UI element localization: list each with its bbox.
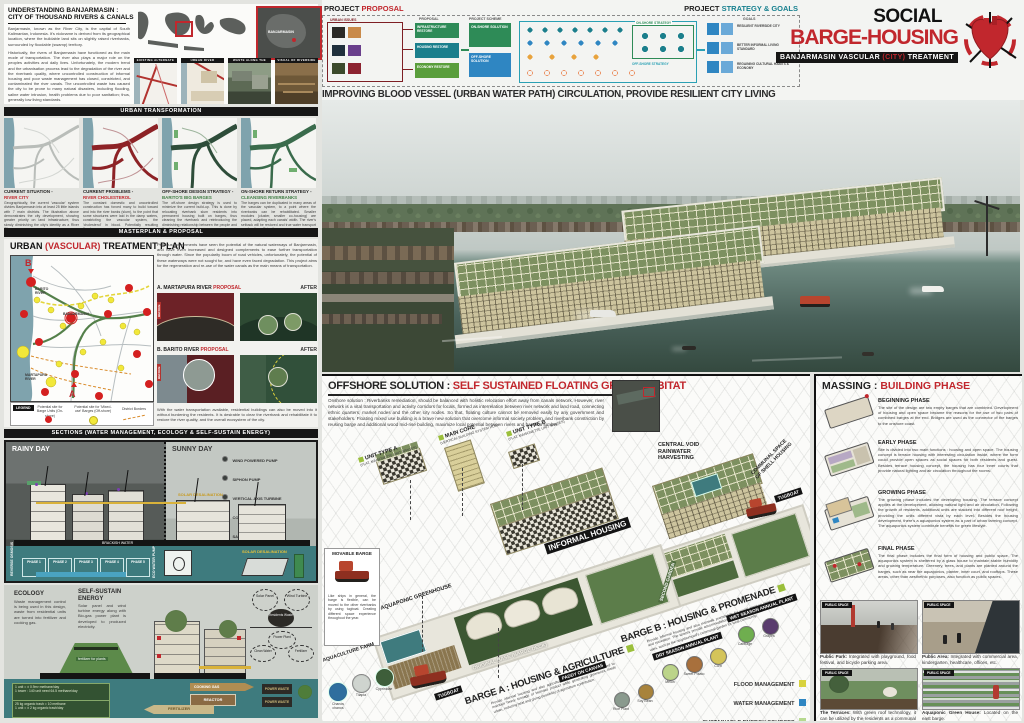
cabbage-icon [738, 626, 755, 643]
scheme-box-label: ON-SHORE SOLUTION [469, 23, 511, 31]
proposal-box-2: HOUSING RESTORE [415, 43, 459, 58]
phase-box: PHASE 5 [126, 558, 150, 577]
before-label: BEFORE [157, 364, 161, 381]
flow-right-title: PROJECT [684, 4, 722, 13]
offshore-strategy-label: OFF-SHORE STRATEGY [632, 62, 669, 66]
before-label: BEFORE [157, 302, 161, 319]
leader-line [462, 468, 463, 516]
legend-red-dot [45, 416, 52, 423]
title-block: SOCIAL BARGE-HOUSING BANJARMASIN VASCULA… [802, 4, 1020, 96]
white-boat [590, 310, 616, 317]
proposal-box-1: INFRASTRUCTURE RESTORE [415, 23, 459, 38]
fertilizer-arrow: FERTILIZER [144, 705, 214, 714]
section-building [30, 484, 66, 542]
goals-col-label: GOALS [743, 17, 755, 21]
proposal-a-accent: PROPOSAL [213, 285, 241, 291]
legend-title: LEGEND [13, 405, 34, 411]
photo-public-area: PUBLIC SPACE [922, 600, 1020, 654]
crop-label: Melon [659, 680, 681, 684]
pump-machine [164, 550, 192, 576]
proposal-b-accent: PROPOSAL [201, 347, 229, 353]
photo-tag: PUBLIC SPACE [924, 670, 954, 676]
intro-panel: UNDERSTANDING BANJARMASIN : CITY OF THOU… [4, 4, 318, 104]
sunny-day-label: SUNNY DAY [172, 446, 212, 453]
section-building [108, 490, 144, 542]
legend-label-yellow: Potential site for 'Mixed-use' Barges (O… [73, 405, 113, 414]
legend-label-border: District Borders [119, 407, 149, 411]
proposal-col-label: PROPOSAL [419, 17, 439, 21]
caption-lead: Public Area: [922, 654, 949, 659]
phase-name: GROWING PHASE [878, 490, 926, 496]
photo-tag: PUBLIC SPACE [822, 602, 852, 608]
inset-label: BANJARMASIN [268, 30, 294, 34]
title-social: SOCIAL [873, 6, 942, 28]
ut-map-onshore [241, 118, 316, 188]
title-bar-pre: BANJARMASIN VASCULAR [780, 54, 882, 61]
ut-map-problems [83, 118, 158, 188]
desalination-unit [241, 558, 289, 576]
treatment-outro-text: With the water transportation available,… [157, 407, 317, 423]
eco-building [154, 621, 200, 675]
intro-paragraph-1: Banjarmasin, known as the River City, is… [8, 26, 130, 47]
main-render [322, 100, 1020, 372]
flowchart-frame: URBAN ISSUES PROPOSAL INFRASTRUCTURE RES… [322, 15, 800, 87]
power-waste-box: POWER WASTE [262, 684, 292, 694]
photo-terraces: PUBLIC SPACE [820, 668, 918, 710]
treatment-plan-section: URBAN (VASCULAR) TREATMENT PLAN [4, 239, 318, 427]
onshore-strategy-label: ON-SHORE STRATEGY [635, 21, 672, 25]
intro-title-line1: UNDERSTANDING BANJARMASIN : [8, 7, 134, 14]
legend-item: SIPHON PUMP [232, 477, 260, 482]
ut-subtitle: CLEANSING RIVERBANKS [241, 195, 316, 200]
node-wind-turbine: Wind Turbine [284, 589, 310, 611]
unit-b-block [508, 443, 540, 469]
small-boat [862, 352, 874, 356]
after-label: AFTER [300, 347, 317, 353]
ut-panel-2: CURRENT PROBLEMS - RIVER CHOLESTEROL The… [83, 118, 158, 231]
left-riverbank [322, 228, 454, 372]
section-building [238, 504, 286, 542]
proposal-b: B. BARITO RIVER PROPOSALAFTER BEFORE [157, 347, 317, 353]
energy-title: SELF-SUSTAIN ENERGY [78, 589, 128, 602]
intro-title: UNDERSTANDING BANJARMASIN : CITY OF THOU… [8, 7, 134, 24]
thumbnail: WASTE ALONG THE CANALS [228, 58, 271, 104]
grapes-icon [762, 618, 779, 635]
crop-label: Cabbage [734, 642, 756, 646]
reactor-box: REACTOR [190, 694, 236, 706]
crop-label: Corn [707, 664, 729, 668]
movable-barge-image [335, 561, 369, 583]
scheme-box-onshore: ON-SHORE SOLUTION [469, 23, 511, 47]
proposal-a-title: A. MARTAPURA RIVER [157, 285, 213, 291]
photo-tag: PUBLIC SPACE [924, 602, 954, 608]
leader-line [410, 480, 411, 520]
city-marker [292, 38, 296, 42]
crop-label: Rice Plant [610, 707, 632, 711]
underwater-band: REVERSE OSMOSIS PHASE 1PHASE 2PHASE 3PHA… [6, 546, 316, 581]
chanos-icon [328, 682, 348, 702]
tugboat-label: TUGBOAT [774, 487, 803, 502]
brackish-water-label: BRACKISH WATER [102, 541, 133, 545]
communal-space-label: COMMUNAL SPACE OF SHELL HOUSING [750, 437, 794, 481]
thumbnail: VISUAL OF RIVERSIDE SETTLEMENTS [275, 58, 318, 104]
eco-underwater: 1 unit = ± 0.9m³ methane/day 1 tower : 1… [4, 679, 318, 718]
legend-yellow-dot [89, 416, 98, 425]
goal-label: REGAINING CULTURAL HABITS & ECONOMY [737, 63, 793, 71]
heart-logo-icon [960, 8, 1020, 72]
movable-barge-caption: Like ships in general, the barge is flex… [328, 594, 376, 620]
proposal-b-after-image [240, 355, 317, 403]
goal-label: RESILIENT RIVERSIDE CITY [737, 25, 793, 29]
phase-bar [36, 572, 126, 577]
ecology-panel: ECOLOGY Waste management control is bein… [4, 585, 318, 718]
offshore-title-pre: OFFSHORE SOLUTION : [328, 380, 453, 392]
phase-text: Site is divided into two main functions … [878, 447, 1018, 473]
goal-1: RESILIENT RIVERSIDE CITY [707, 23, 795, 39]
corn-icon [710, 648, 727, 665]
urban-issues-label: URBAN ISSUES [328, 18, 358, 22]
photo-caption: Public Area: Integrated with commercial … [922, 654, 1018, 666]
phase-name: FINAL PHASE [878, 546, 915, 552]
arrow-up-icon [71, 382, 77, 387]
white-yacht [922, 286, 944, 292]
photo-caption: Aquaponic Green House: Located on the ea… [922, 710, 1018, 721]
ut-panel-4: ON-SHORE RETURN STRATEGY - CLEANSING RIV… [241, 118, 316, 231]
flow-right-accent: STRATEGY & GOALS [722, 4, 798, 13]
legend-item: WIND POWERED PUMP [232, 458, 277, 463]
ut-text: The barges can be duplicated in many are… [241, 201, 316, 232]
eco-water-pump-label: ECO WATER PUMP [152, 546, 156, 578]
rice-icon [614, 692, 630, 708]
strategy-dots-teal [523, 25, 627, 35]
crop-label: Soy Bean [634, 699, 656, 703]
thumbnail: EXISTING ALTERNATE CANAL NETWORK [134, 58, 177, 104]
melon-icon [662, 664, 679, 681]
movable-barge-card: MOVABLE BARGE Like ships in general, the… [324, 548, 380, 646]
ut-text: The off-shore design strategy is used to… [162, 201, 237, 232]
main-core-block [444, 439, 485, 491]
goal-3: REGAINING CULTURAL HABITS & ECONOMY [707, 61, 795, 77]
eco-info-box-1: 1 unit = ± 0.9m³ methane/day 1 tower : 1… [12, 683, 110, 701]
treatment-title-pre: URBAN [10, 241, 45, 251]
treatment-title-accent: (VASCULAR) [45, 241, 100, 251]
caption-lead: The Terraces: [820, 710, 851, 715]
intro-title-line2: CITY OF THOUSAND RIVERS & CANALS [8, 14, 134, 21]
species-label: Chanos chanos [328, 702, 348, 711]
onshore-strategy-box: ON-SHORE STRATEGY [632, 25, 694, 59]
power-waste-box: POWER WASTE [262, 697, 292, 707]
phase-1-diagram [824, 396, 874, 429]
urban-transformation-header: URBAN TRANSFORMATION [4, 107, 318, 116]
node-fertilizer: Fertilizer [288, 645, 314, 662]
flow-left-accent: PROPOSAL [362, 4, 404, 13]
intro-thumbnails: EXISTING ALTERNATE CANAL NETWORK URBAN R… [134, 58, 318, 104]
massing-title-pre: MASSING : [822, 380, 880, 392]
energy-text: Solar panel and wind turbine energy alon… [78, 603, 126, 629]
phase-3-diagram [824, 496, 875, 531]
phase-row-4: FINAL PHASE The final phase includes the… [820, 546, 1018, 596]
greenhouse-label: AQUAPONIC GREENHOUSE [380, 583, 452, 612]
tug-barge [800, 296, 830, 307]
node-clean-water: Clean Water [250, 645, 276, 662]
phase-row-2: EARLY PHASE Site is divided into two mai… [820, 440, 1018, 486]
section-building [176, 500, 230, 542]
arrow-down-icon [28, 269, 34, 274]
offshore-panel: OFFSHORE SOLUTION : SELF SUSTAINED FLOAT… [322, 374, 810, 721]
intro-paragraph-2: Historically, the rivers of Banjarmasin … [8, 50, 130, 102]
ecology-title: ECOLOGY [14, 591, 44, 597]
solar-desalination-label-2: SOLAR DESALINATION [242, 549, 287, 554]
offshore-legend: FLOOD MANAGEMENT WATER MANAGEMENT SUSTAI… [682, 672, 806, 721]
proposal-box-3: ECONOMY RESTORE [415, 63, 459, 78]
proposal-box-label: ECONOMY RESTORE [415, 63, 459, 71]
massing-panel: MASSING : BUILDING PHASE BEGINNING PHASE… [814, 374, 1022, 721]
phase-row-1: BEGINNING PHASE The site of the design a… [820, 398, 1018, 436]
crop-label: Grapes [758, 634, 780, 638]
species-label: Tilapia [352, 693, 370, 697]
eco-info-box-2: 25 kg organic trash = 10 methane 1 unit … [12, 700, 110, 718]
photo-caption: Public Park: Integrated with playground,… [820, 654, 916, 666]
proposal-box-label: INFRASTRUCTURE RESTORE [415, 23, 459, 35]
treatment-map: B A BARITO RIVER BANJARMASIN MARTAPURA R… [10, 255, 154, 402]
proposal-a-after-image [240, 293, 317, 341]
sections-header: SECTIONS (WATER MANAGEMENT, ECOLOGY & SE… [4, 429, 318, 438]
pipe-yellow [36, 502, 186, 504]
eco-building [204, 629, 246, 675]
caption-lead: Aquaponic Green House: [922, 710, 981, 715]
eco-info-line: 1 tower : 140 unit need 64.5 methane/day [15, 689, 107, 693]
strategy-box: ON-SHORE STRATEGY OFF-SHORE STRATEGY [519, 21, 697, 83]
map-marker-a: A [69, 389, 76, 399]
leader-line [522, 464, 523, 510]
goal-label: BETTER INFORMAL LIVING STANDARD [737, 44, 793, 52]
masterplan-header: MASTERPLAN & PROPOSAL [4, 228, 318, 237]
map-label-city: BANJARMASIN [63, 312, 89, 316]
movable-barge-title: MOVABLE BARGE [325, 551, 379, 556]
title-bar-post: TREATMENT [905, 54, 954, 61]
phase-2-diagram [824, 442, 875, 477]
title-bar: BANJARMASIN VASCULAR (CITY) TREATMENT [776, 52, 958, 63]
title-barge-housing: BARGE-HOUSING [790, 26, 958, 50]
legend-flood: FLOOD MANAGEMENT [734, 682, 795, 688]
proposal-box-label: HOUSING RESTORE [415, 43, 459, 51]
after-label: AFTER [300, 285, 317, 291]
strategy-dots-orange [523, 52, 603, 62]
urban-issues-box: URBAN ISSUES [327, 22, 403, 82]
legend-dashed-line [123, 415, 145, 421]
tagline: IMPROVING BLOOD VESSEL (URBAN WATER PATH… [322, 88, 767, 100]
ut-map-offshore [162, 118, 237, 188]
ut-subtitle: BARITO'S BIG BARGES [162, 195, 237, 200]
node-residents-waste: Residents Waste [268, 609, 294, 627]
phase-name: EARLY PHASE [878, 440, 917, 446]
flowchart-panel: PROJECT PROPOSAL PROJECT STRATEGY & GOAL… [322, 2, 800, 100]
treatment-intro-text: Previous governments have seen the poten… [157, 242, 317, 268]
ut-text: The constant domestic and uncontrolled c… [83, 201, 158, 232]
aquaculture-species: Chanos chanos Tilapia Cyprinidae [328, 668, 418, 714]
treatment-legend: LEGEND Potential site for Barge Units (O… [10, 402, 154, 426]
ut-subtitle: RIVER CITY [4, 195, 79, 200]
scheme-box-offshore: OFF-SHORE SOLUTION [469, 53, 511, 77]
proposal-b-before-image: BEFORE [157, 355, 234, 403]
offshore-minimap [612, 380, 660, 432]
photo-aquaponic: PUBLIC SPACE [922, 668, 1020, 710]
urban-transformation-panels: CURRENT SITUATION - RIVER CITY Geographi… [4, 118, 318, 226]
green-filter [294, 554, 304, 578]
tilapia-icon [352, 674, 371, 693]
strategy-dots-blue [523, 38, 627, 48]
ut-text: Geographically, the current 'vascular' s… [4, 201, 79, 232]
photo-public-park: PUBLIC SPACE [820, 600, 918, 654]
strategy-dots-ring [523, 68, 643, 78]
sweet-potato-icon [686, 656, 703, 673]
massing-title-accent: BUILDING PHASE [880, 380, 970, 392]
title-underline [8, 23, 126, 25]
phase-name: BEGINNING PHASE [878, 398, 930, 404]
cooking-gas-arrow: COOKING GAS [190, 683, 254, 691]
energy-diagram: Solar Panel Wind Turbine Residents Waste… [250, 587, 314, 653]
small-boat [682, 346, 696, 350]
eco-info-line: 1 unit = ± 2 kg organic trash/day [15, 706, 107, 710]
title-bar-accent: (CITY) [882, 54, 905, 61]
poster: UNDERSTANDING BANJARMASIN : CITY OF THOU… [0, 0, 1024, 723]
legend-water: WATER MANAGEMENT [734, 701, 795, 707]
figure [993, 685, 999, 699]
species-label: Cyprinidae [373, 687, 395, 691]
proposal-a-before-image: BEFORE [157, 293, 234, 341]
ut-panel-1: CURRENT SITUATION - RIVER CITY Geographi… [4, 118, 79, 231]
phase-text: The final phase includes the final form … [878, 553, 1018, 579]
thumbnail: URBAN RIVER CONSTRICTION [181, 58, 224, 104]
fertilizer-plants-label: fertilizer for plants [76, 657, 108, 661]
map-label-barito: BARITO RIVER [35, 288, 57, 296]
legend-item: VERTICAL AXIS TURBINE [232, 496, 281, 501]
rainy-day-label: RAINY DAY [12, 446, 50, 453]
kalimantan-inset-map: BANJARMASIN [256, 6, 322, 60]
phase-4-diagram [824, 548, 875, 583]
phase-row-3: GROWING PHASE The growing phase includes… [820, 490, 1018, 542]
cyprinidae-icon [375, 668, 394, 687]
proposal-b-title: B. BARITO RIVER [157, 347, 201, 353]
phase-text: The site of the design are two empty bar… [878, 405, 1018, 426]
photo-tag: PUBLIC SPACE [822, 670, 852, 676]
legend-energy: SUSTAINABLE ENERGY SOURCES [702, 720, 794, 721]
scheme-col-label: PROJECT SCHEME [469, 17, 501, 21]
ecology-text: Waste management control is being used i… [14, 599, 66, 625]
sections-panel: RAINY DAY SUNNY DAY WIND POWERED PUMP SI… [4, 440, 318, 583]
leader-line [498, 628, 499, 678]
photo-caption: The Terraces: With green roof technology… [820, 710, 916, 721]
indonesia-map [134, 6, 252, 56]
map-marker-b: B [25, 258, 32, 268]
node-solar-panel: Solar Panel [252, 589, 278, 611]
map-label-martapura: MARTAPURA RIVER [25, 374, 51, 382]
proposal-a: A. MARTAPURA RIVER PROPOSALAFTER BEFORE [157, 285, 317, 291]
ut-subtitle: RIVER CHOLESTEROL [83, 195, 158, 200]
solar-desalination-label: SOLAR DESALINATION [178, 492, 223, 497]
caption-lead: Public Park: [820, 654, 847, 659]
soy-icon [638, 684, 654, 700]
mound-roof [74, 647, 118, 650]
reverse-osmosis-label: REVERSE OSMOSIS [10, 542, 14, 576]
offshore-underline [328, 394, 658, 396]
flow-left-title: PROJECT [324, 4, 362, 13]
ut-map-current [4, 118, 79, 188]
central-void-label: CENTRAL VOID RAINWATER HARVESTING [658, 442, 714, 462]
algae-ball [298, 685, 312, 699]
ut-panel-3: OFF-SHORE DESIGN STRATEGY - BARITO'S BIG… [162, 118, 237, 231]
phase-text: The growing phase includes the developin… [878, 497, 1018, 528]
leader-line [422, 596, 423, 652]
scheme-box-label: OFF-SHORE SOLUTION [469, 53, 511, 65]
